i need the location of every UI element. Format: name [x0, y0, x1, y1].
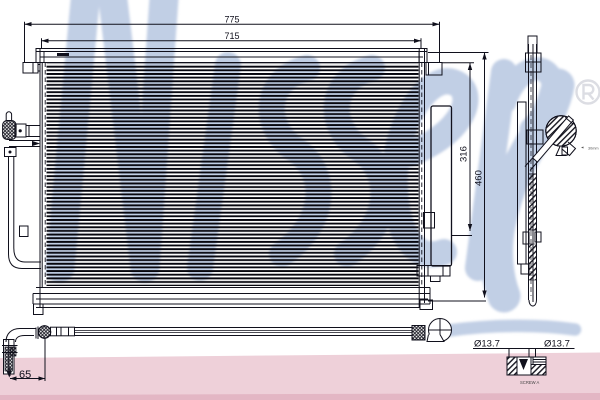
svg-text:Ø13.7: Ø13.7 [474, 339, 500, 350]
svg-text:Ø13.7: Ø13.7 [544, 339, 570, 350]
svg-text:30mm: 30mm [588, 147, 599, 151]
svg-text:SCREW A: SCREW A [520, 380, 540, 385]
svg-text:460: 460 [474, 170, 485, 186]
svg-text:65: 65 [19, 369, 31, 381]
svg-text:715: 715 [224, 31, 239, 41]
svg-text:775: 775 [224, 15, 239, 25]
svg-text:316: 316 [459, 146, 470, 162]
